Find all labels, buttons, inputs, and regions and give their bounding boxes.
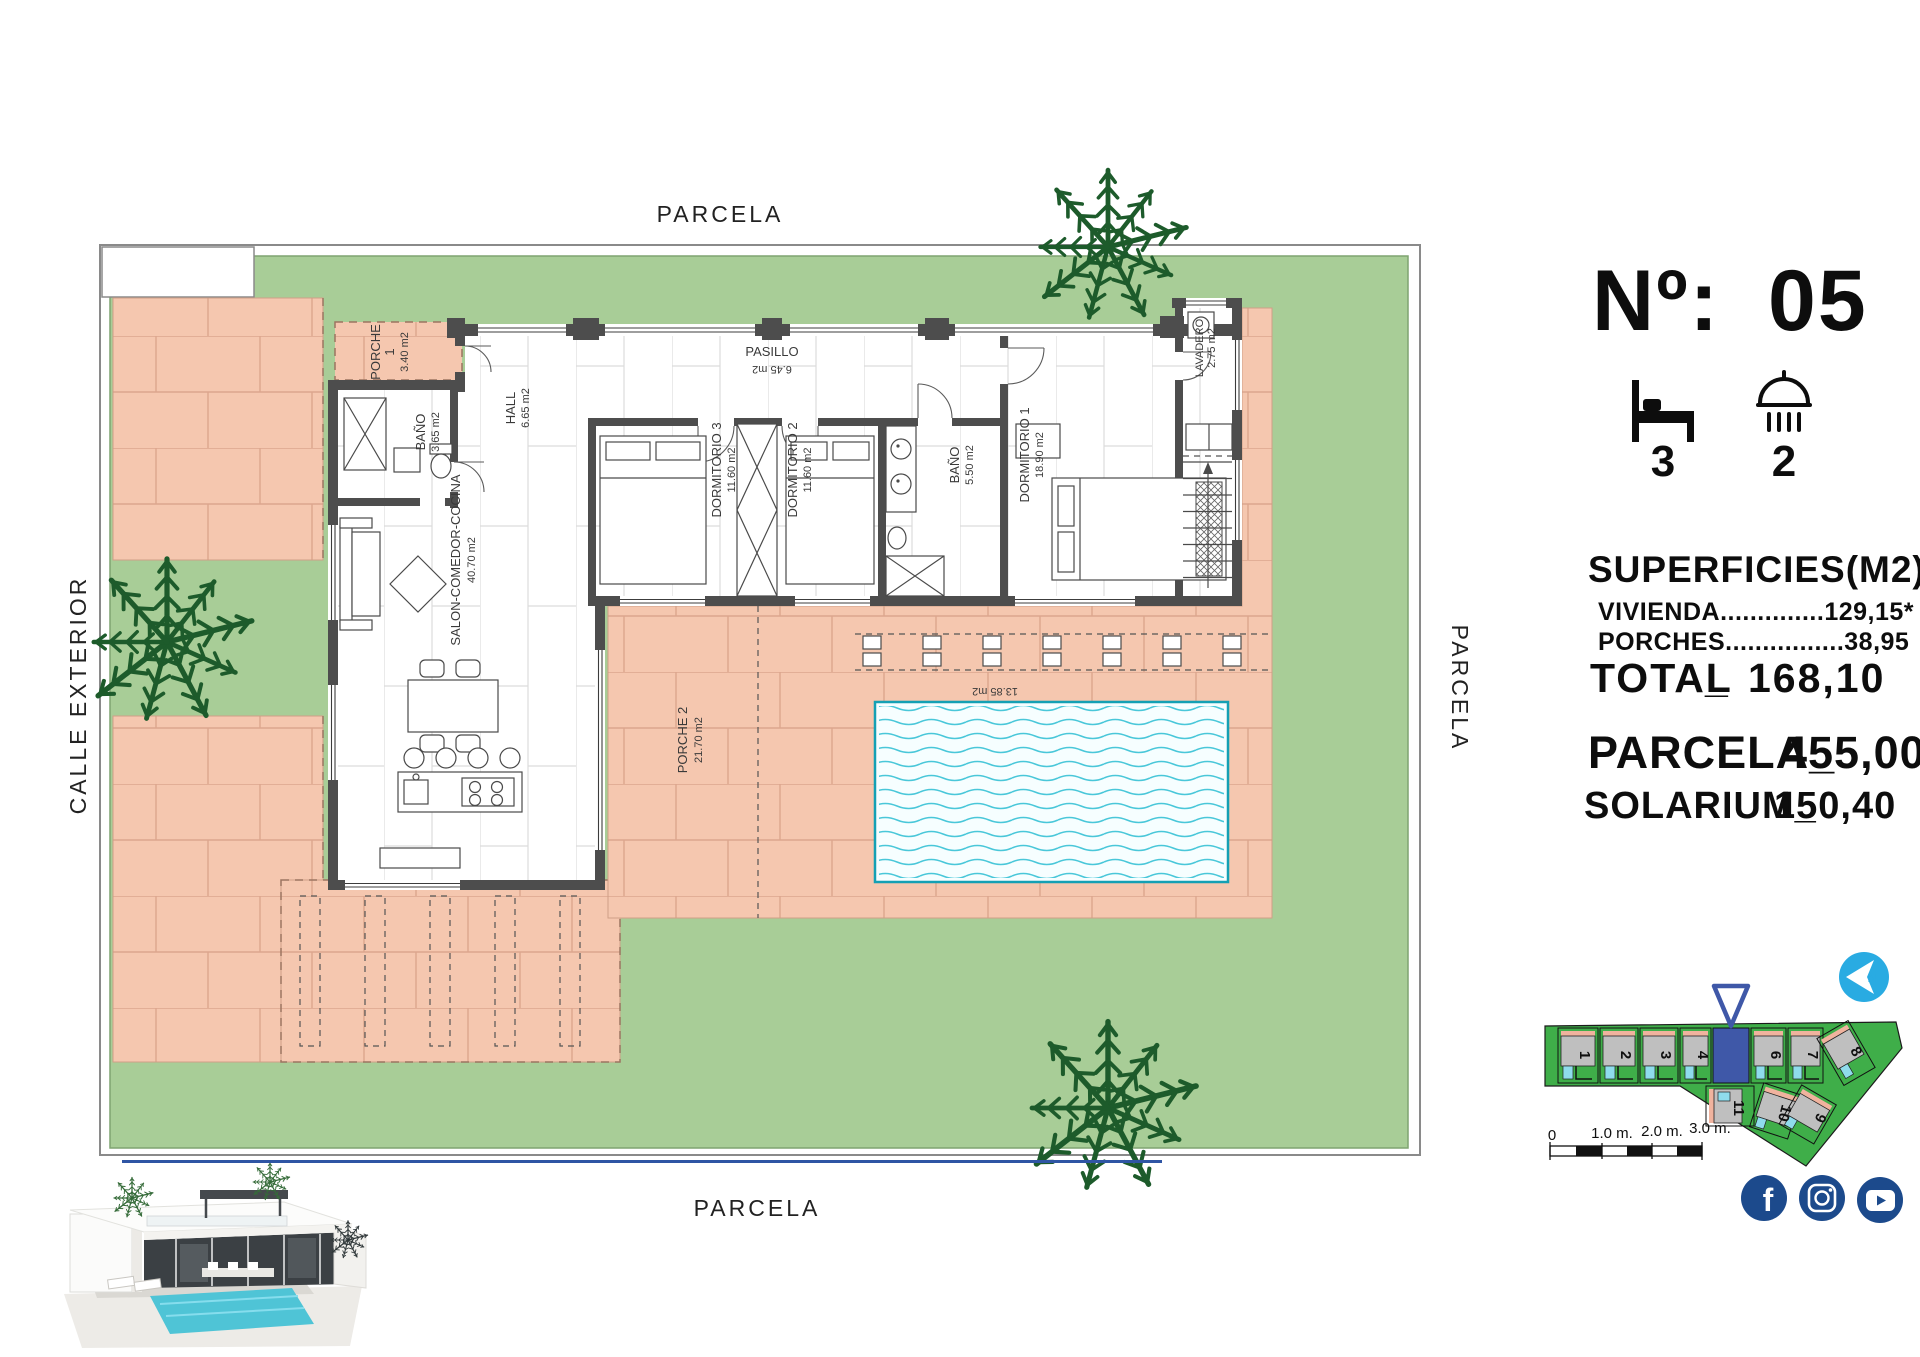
highlighted-plot: [1713, 1028, 1749, 1083]
surface-porches: PORCHES................38,95: [1598, 628, 1909, 656]
svg-text:11: 11: [1730, 1100, 1747, 1116]
location-marker: [1714, 986, 1748, 1026]
floor-plan-sheet: 13.85 m2: [0, 0, 1920, 1357]
surface-total-value: 168,10: [1748, 655, 1885, 701]
plot-plan: 13.85 m2: [65, 170, 1473, 1221]
svg-text:0: 0: [1548, 1127, 1556, 1144]
svg-text:N: N: [1868, 971, 1877, 985]
site-plan: 1 2 3 4 6 7 8 9 10 11 N 0 1.0 m. 2.0 m. …: [1545, 952, 1902, 1166]
pool: [875, 702, 1228, 882]
instagram-icon[interactable]: [1799, 1175, 1845, 1221]
villa-photo: [64, 1163, 368, 1348]
scale-bar: 0 1.0 m. 2.0 m. 3.0 m.: [1548, 1120, 1731, 1160]
svg-text:1.0 m.: 1.0 m.: [1591, 1125, 1633, 1142]
svg-text:7: 7: [1804, 1051, 1821, 1059]
svg-text:2.0 m.: 2.0 m.: [1641, 1123, 1683, 1140]
surface-parcela-value: 455,00: [1782, 727, 1920, 778]
bedrooms-count: 3: [1651, 437, 1675, 486]
facebook-icon[interactable]: f: [1741, 1175, 1787, 1221]
svg-text:BAÑO5.50 m2: BAÑO5.50 m2: [947, 445, 976, 485]
svg-text:6.45 m2: 6.45 m2: [752, 363, 792, 375]
plot-number-label: Nº:: [1592, 253, 1720, 349]
info-panel: Nº: 05 3 2 SUPERFICIES(M2) VIVIENDA.....…: [1584, 253, 1920, 827]
svg-text:f: f: [1763, 1182, 1774, 1218]
label-parcela-right: PARCELA: [1447, 625, 1473, 752]
svg-text:1: 1: [1576, 1051, 1593, 1059]
shower-icon: [1758, 372, 1810, 430]
porche3-dim: 13.85 m2: [972, 685, 1018, 697]
svg-text:6: 6: [1767, 1051, 1784, 1059]
surface-vivienda: VIVIENDA..............129,15*: [1598, 598, 1914, 626]
label-parcela-top: PARCELA: [657, 201, 784, 227]
label-calle-exterior: CALLE EXTERIOR: [65, 576, 91, 815]
surface-total-sep: _: [1704, 655, 1730, 701]
bed-icon: [1632, 380, 1694, 442]
youtube-icon[interactable]: [1857, 1177, 1903, 1223]
svg-text:3: 3: [1657, 1051, 1674, 1059]
svg-text:BAÑO3.65 m2: BAÑO3.65 m2: [413, 412, 442, 452]
divider-line: [122, 1160, 1162, 1163]
social-icons: f: [1741, 1175, 1903, 1223]
plot-number-value: 05: [1768, 253, 1868, 349]
compass-icon: N: [1839, 952, 1889, 1002]
svg-text:HALL6.65 m2: HALL6.65 m2: [503, 388, 532, 428]
svg-text:2: 2: [1617, 1051, 1634, 1059]
svg-text:4: 4: [1694, 1051, 1711, 1060]
bathrooms-count: 2: [1772, 437, 1796, 486]
surfaces-title: SUPERFICIES(M2): [1588, 549, 1920, 590]
boundary-notch: [102, 247, 254, 297]
svg-text:3.0 m.: 3.0 m.: [1689, 1120, 1731, 1137]
surface-solarium-value: 150,40: [1774, 785, 1896, 827]
svg-text:PASILLO: PASILLO: [745, 344, 798, 359]
label-parcela-bottom: PARCELA: [694, 1195, 821, 1221]
